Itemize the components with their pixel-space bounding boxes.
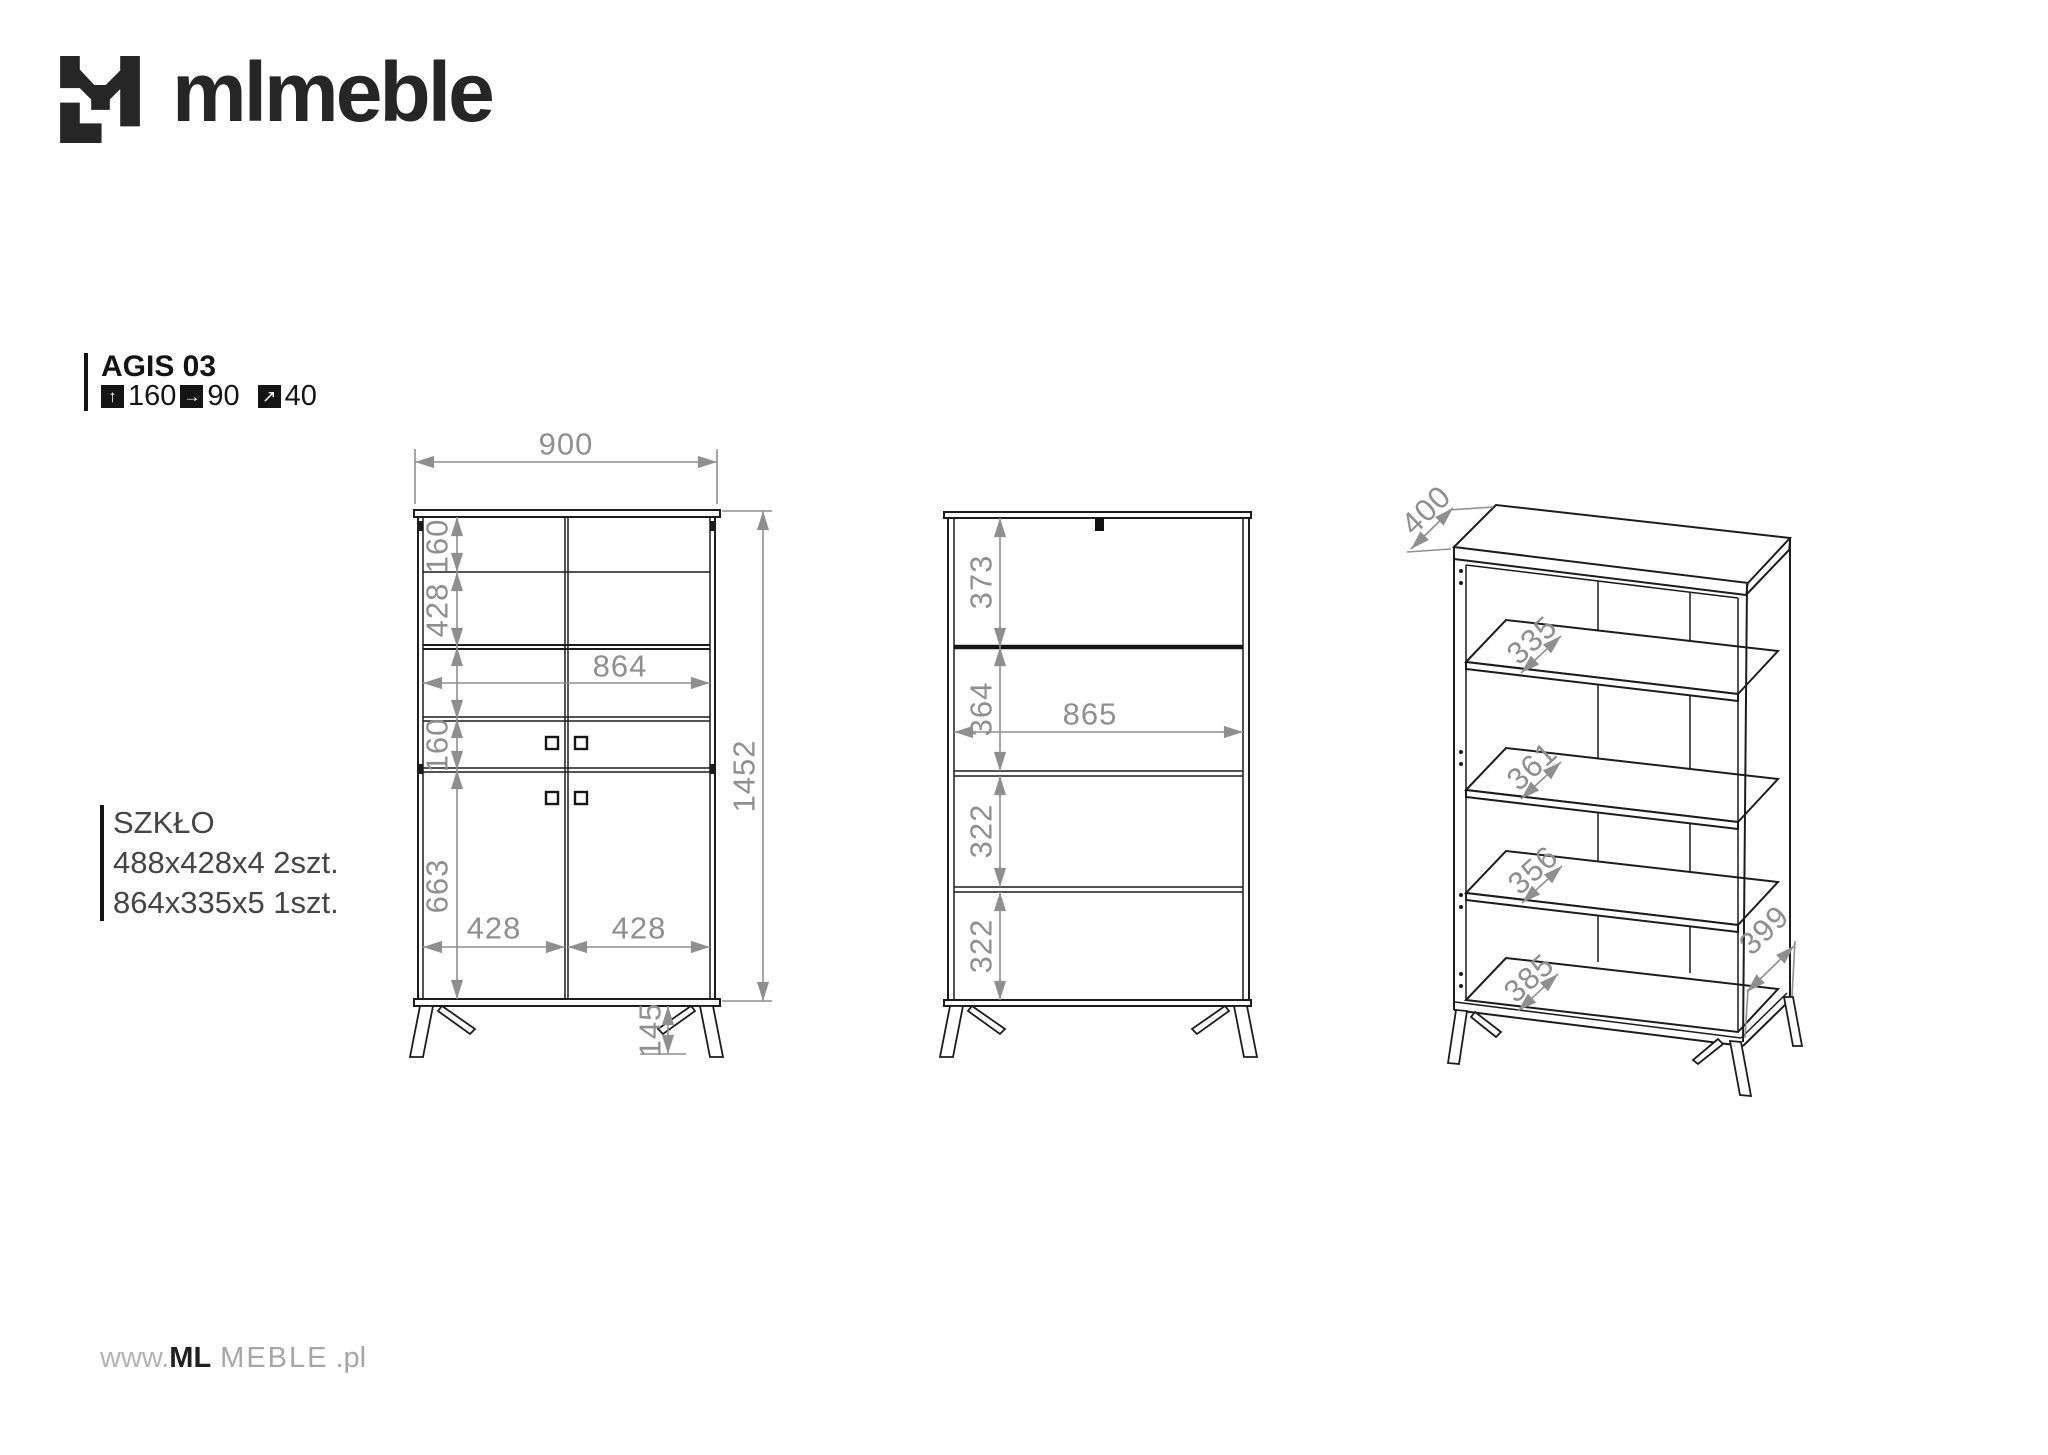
dim-front-row3: 160: [420, 718, 455, 773]
dim-open-section3: 322: [964, 804, 999, 859]
door-handle: [546, 737, 558, 749]
dim-iso-top-depth: 400: [1394, 478, 1458, 541]
dim-open-inner-width: 865: [1063, 697, 1118, 732]
footer-name: MEBLE: [220, 1342, 328, 1374]
door-handle: [546, 792, 558, 804]
technical-drawings: 900 160 428 160 663 864 428 428 1452: [0, 0, 2048, 1455]
dim-open-section4: 322: [964, 919, 999, 974]
footer-www: www.: [100, 1342, 169, 1374]
front-view-drawing: 900 160 428 160 663 864 428 428 1452: [410, 427, 772, 1058]
perspective-view-drawing: 400 335 361 356 385 399: [1394, 478, 1802, 1096]
dim-front-leg-height: 145: [633, 1003, 668, 1058]
dim-front-row2: 428: [420, 583, 455, 638]
dim-front-door-height: 663: [420, 859, 455, 914]
open-view-drawing: 373 364 322 322 865: [940, 512, 1257, 1057]
footer-brand: ML: [169, 1342, 211, 1374]
wall-bracket: [1095, 518, 1104, 531]
footer-tld: .pl: [336, 1342, 367, 1374]
footer-url: www.MLMEBLE.pl: [100, 1342, 366, 1374]
dim-front-row1: 160: [420, 519, 455, 574]
dim-open-section2: 364: [964, 682, 999, 737]
dim-front-inner-width: 864: [593, 649, 648, 684]
dim-front-door-right: 428: [612, 911, 667, 946]
door-handle: [575, 737, 587, 749]
dim-front-width: 900: [539, 427, 594, 462]
spec-sheet-canvas: mlmeble AGIS 03 ↑ 160 → 90 ↗ 40 SZKŁO 48…: [0, 0, 2048, 1455]
dim-front-total-height: 1452: [727, 740, 762, 813]
door-handle: [575, 792, 587, 804]
dim-front-door-left: 428: [467, 911, 522, 946]
dim-open-section1: 373: [964, 555, 999, 610]
